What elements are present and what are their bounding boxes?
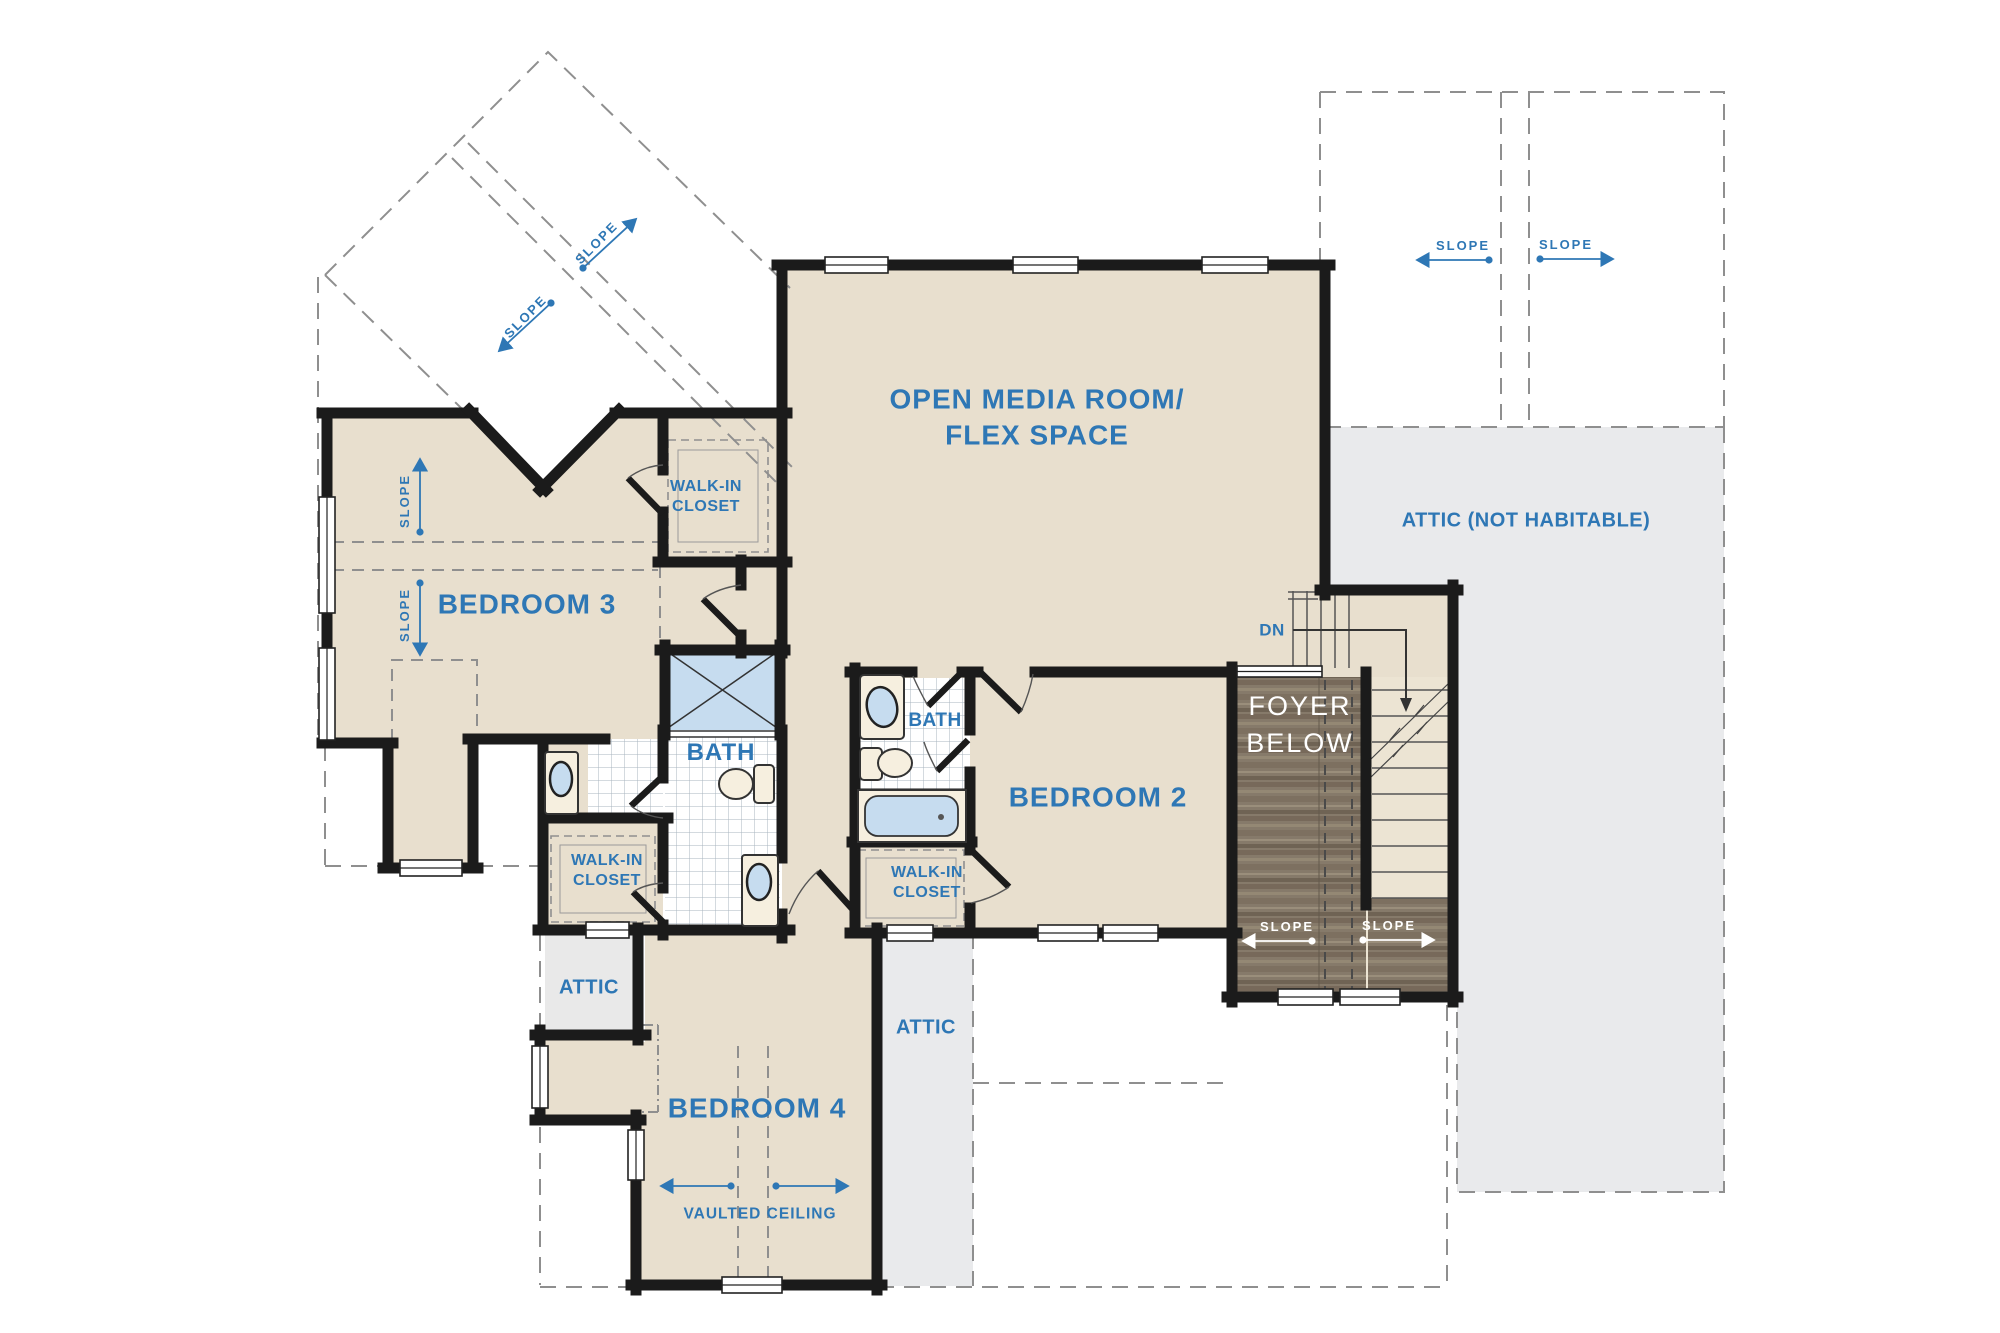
floor-plan-drawing [0, 0, 2000, 1333]
bathtub [865, 796, 958, 836]
toilet-bowl [878, 749, 912, 777]
sink [747, 864, 771, 900]
floor-plan: OPEN MEDIA ROOM/ FLEX SPACE ATTIC (NOT H… [0, 0, 2000, 1333]
shower [665, 650, 780, 737]
tub-drain [938, 814, 944, 820]
toilet-bowl [719, 769, 753, 799]
toilet-tank [754, 765, 774, 803]
sink [550, 762, 572, 796]
